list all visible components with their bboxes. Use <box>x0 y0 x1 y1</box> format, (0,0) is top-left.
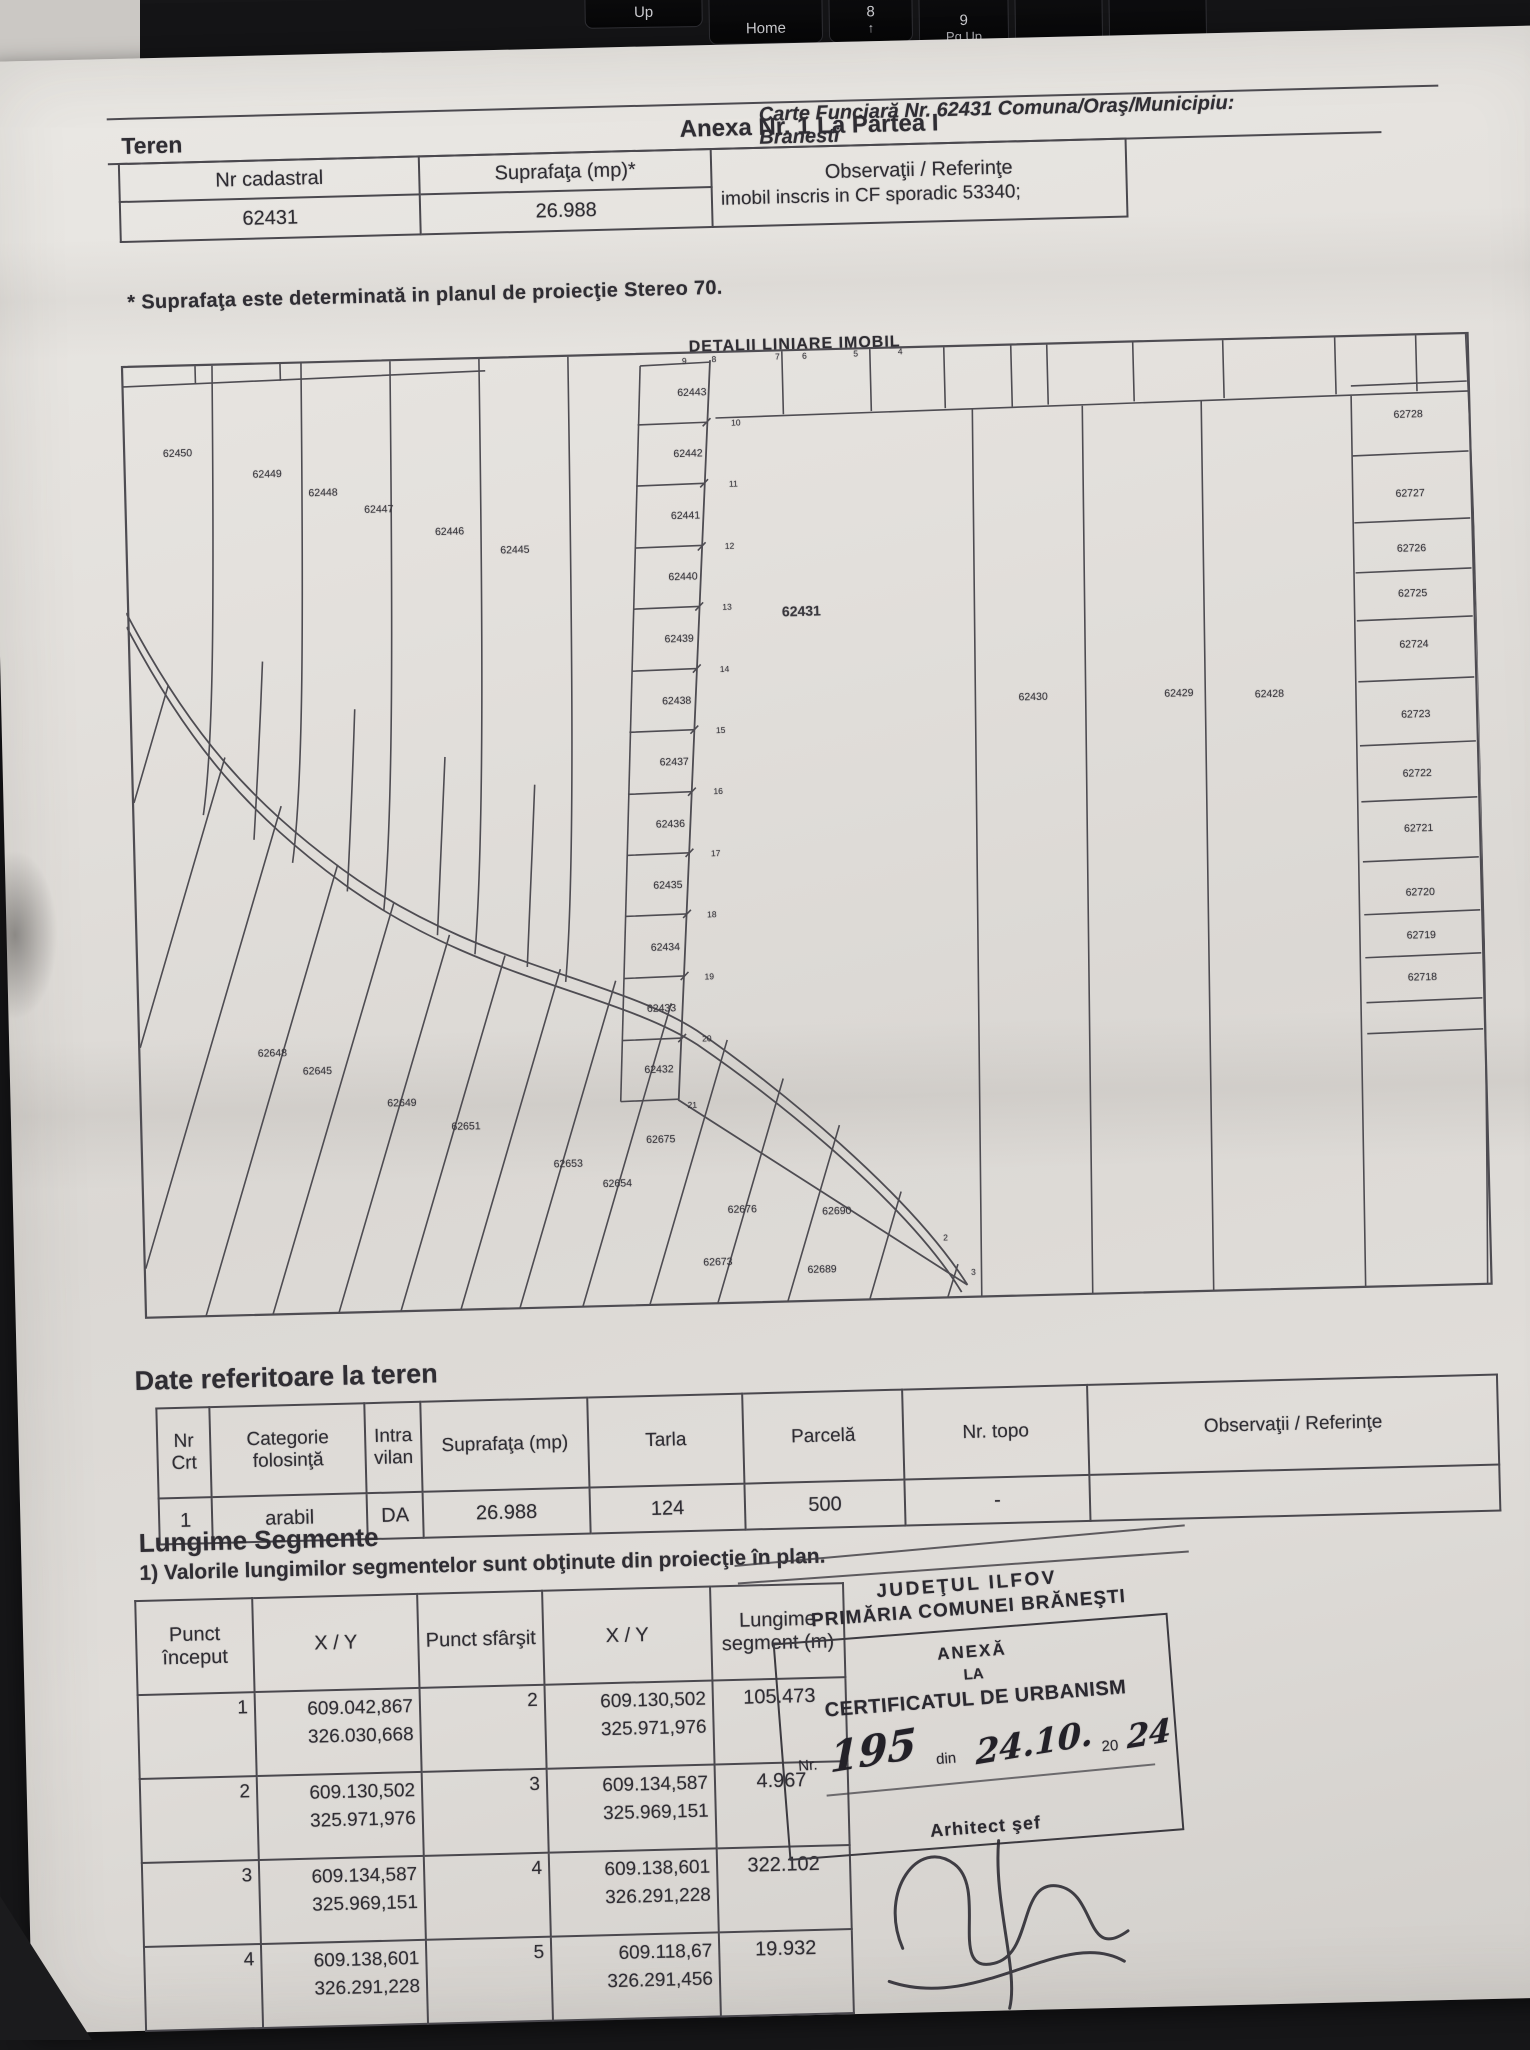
parcel-label-62654: 62654 <box>603 1177 632 1190</box>
parcel-label-62726: 62726 <box>1397 542 1426 555</box>
suprafata-footnote: * Suprafaţa este determinată in planul d… <box>127 277 723 315</box>
parcel-label-62727: 62727 <box>1395 487 1424 500</box>
seg-xy1: 609.138,601326.291,228 <box>261 1940 428 2028</box>
stamp-date-handwritten: 24.10. <box>976 1713 1093 1773</box>
parcel-label-62723: 62723 <box>1401 708 1430 721</box>
vertex-label-10: 10 <box>731 417 741 427</box>
vertex-label-19: 19 <box>704 971 714 981</box>
seg-col-header-0: Punct început <box>135 1598 254 1695</box>
parcel-label-62433: 62433 <box>647 1002 676 1015</box>
seg-xy1: 609.130,502325.971,976 <box>257 1772 424 1860</box>
vertex-label-12: 12 <box>725 540 735 550</box>
seg-xy1: 609.134,587325.969,151 <box>259 1856 426 1944</box>
parcel-label-62718: 62718 <box>1408 971 1437 984</box>
date-col-header-7: Observaţii / Referinţe <box>1087 1375 1499 1475</box>
date-col-header-4: Tarla <box>587 1394 744 1488</box>
parcel-label-62645: 62645 <box>303 1065 332 1078</box>
seg-col-header-1: X / Y <box>252 1594 419 1692</box>
seg-p1: 4 <box>144 1944 263 2031</box>
parcel-label-62725: 62725 <box>1398 587 1427 600</box>
seg-col-header-3: X / Y <box>542 1587 712 1685</box>
date-row-cell-4: 124 <box>589 1484 745 1534</box>
stamp-year-prefix: 20 <box>1101 1737 1119 1755</box>
parcel-label-62428: 62428 <box>1255 688 1284 701</box>
stamp-top-line <box>734 1524 1184 1566</box>
parcel-label-62438: 62438 <box>662 694 691 707</box>
parcel-label-62448: 62448 <box>308 486 337 499</box>
parcel-label-62436: 62436 <box>656 818 685 831</box>
parcel-label-62440: 62440 <box>668 571 697 584</box>
parcel-label-62449: 62449 <box>252 468 281 481</box>
seg-xy1: 609.042,867326.030,668 <box>255 1688 422 1776</box>
vertex-label-17: 17 <box>711 848 721 858</box>
parcel-label-62720: 62720 <box>1405 886 1434 899</box>
parcel-label-62724: 62724 <box>1399 638 1428 651</box>
vertex-label-21: 21 <box>687 1100 697 1110</box>
vertex-label-2: 2 <box>943 1232 948 1242</box>
seg-p2: 5 <box>426 1937 553 2024</box>
signature <box>856 1813 1140 2023</box>
date-row-cell-3: 26.988 <box>423 1488 591 1538</box>
vertex-label-13: 13 <box>722 602 732 612</box>
parcel-label-62434: 62434 <box>651 941 680 954</box>
parcel-label-62445: 62445 <box>500 544 529 557</box>
seg-p2: 2 <box>420 1685 547 1772</box>
date-col-header-6: Nr. topo <box>902 1385 1089 1480</box>
stamp-number-row: Nr. 195 din 24.10. 20 24 <box>782 1707 1178 1807</box>
vertex-label-6: 6 <box>802 350 807 360</box>
parcel-label-62437: 62437 <box>659 755 688 768</box>
parcel-label-62651: 62651 <box>451 1120 480 1133</box>
stamp-year-handwritten: 24 <box>1127 1711 1171 1757</box>
vertex-label-4: 4 <box>898 346 903 356</box>
vertex-label-16: 16 <box>713 786 723 796</box>
seg-p2: 3 <box>422 1769 549 1856</box>
parcel-label-62719: 62719 <box>1407 929 1436 942</box>
parcel-label-62648: 62648 <box>258 1047 287 1060</box>
urbanism-stamp: JUDEŢUL ILFOV PRIMĂRIA COMUNEI BRĂNEŞTI … <box>723 1506 1239 2022</box>
date-col-header-3: Suprafaţa (mp) <box>420 1398 589 1492</box>
parcel-label-62432: 62432 <box>644 1063 673 1076</box>
stamp-nr-label: Nr. <box>798 1756 818 1774</box>
parcel-label-62430: 62430 <box>1018 691 1047 704</box>
parcel-label-62722: 62722 <box>1402 767 1431 780</box>
date-teren-table: Nr CrtCategorie folosinţăIntra vilanSupr… <box>155 1374 1501 1546</box>
parcel-label-62447: 62447 <box>364 503 393 516</box>
date-col-header-0: Nr Crt <box>156 1407 211 1498</box>
seg-p1: 1 <box>138 1692 257 1779</box>
parcel-label-62673: 62673 <box>703 1256 732 1269</box>
parcel-label-62728: 62728 <box>1393 408 1422 421</box>
parcel-label-62721: 62721 <box>1404 822 1433 835</box>
parcel-label-62429: 62429 <box>1164 687 1193 700</box>
stamp-din-label: din <box>935 1750 956 1769</box>
observatii-cell: Observaţii / Referinţe imobil inscris in… <box>711 139 1128 227</box>
parcel-label-62443: 62443 <box>677 386 706 399</box>
parcel-label-62690: 62690 <box>822 1205 851 1218</box>
nr-cadastral-value: 62431 <box>120 194 421 242</box>
seg-xy2: 609.118,67326.291,456 <box>551 1932 721 2020</box>
parcel-label-62675: 62675 <box>646 1133 675 1146</box>
vertex-label-20: 20 <box>702 1033 712 1043</box>
seg-xy2: 609.138,601326.291,228 <box>549 1848 719 1936</box>
seg-xy2: 609.130,502325.971,976 <box>544 1680 714 1768</box>
date-row-cell-5: 500 <box>744 1480 905 1530</box>
cadastral-document: Carte Funciară Nr. 62431 Comuna/Oraş/Mun… <box>0 0 1530 2042</box>
suprafata-value: 26.988 <box>420 187 713 234</box>
vertex-label-8: 8 <box>711 354 716 364</box>
vertex-label-11: 11 <box>729 478 738 488</box>
seg-row-3: 4609.138,601326.291,2285609.118,67326.29… <box>144 1929 854 2031</box>
parcel-label-62441: 62441 <box>671 510 700 523</box>
vertex-label-14: 14 <box>720 664 730 674</box>
parcel-label-62442: 62442 <box>673 447 702 460</box>
date-col-header-5: Parcelă <box>742 1390 904 1484</box>
parcel-label-62450: 62450 <box>163 447 192 460</box>
seg-p1: 3 <box>142 1860 261 1947</box>
date-teren-heading: Date referitoare la teren <box>134 1358 438 1397</box>
vertex-label-15: 15 <box>716 725 726 735</box>
parcel-label-62435: 62435 <box>653 879 682 892</box>
parcel-label-62653: 62653 <box>553 1157 582 1170</box>
stamp-nr-handwritten: 195 <box>830 1718 917 1782</box>
date-col-header-1: Categorie folosinţă <box>209 1403 366 1497</box>
seg-xy2: 609.134,587325.969,151 <box>547 1764 717 1852</box>
plan-drawing <box>120 331 1494 1320</box>
vertex-label-5: 5 <box>853 348 858 358</box>
vertex-label-9: 9 <box>682 355 687 365</box>
seg-p2: 4 <box>424 1853 551 1940</box>
seg-col-header-2: Punct sfârşit <box>417 1591 544 1688</box>
vertex-label-3: 3 <box>971 1267 976 1277</box>
parcel-label-62446: 62446 <box>435 525 464 538</box>
parcel-label-62431: 62431 <box>782 602 821 619</box>
date-col-header-2: Intra vilan <box>364 1402 422 1493</box>
seg-p1: 2 <box>140 1776 259 1863</box>
teren-section-label: Teren <box>121 131 183 160</box>
parcel-label-62649: 62649 <box>387 1097 416 1110</box>
parcel-label-62689: 62689 <box>807 1263 836 1276</box>
vertex-label-7: 7 <box>775 351 780 361</box>
segmente-heading: Lungime Segmente <box>138 1522 379 1559</box>
parcel-label-62676: 62676 <box>727 1203 756 1216</box>
parcel-label-62439: 62439 <box>664 633 693 646</box>
teren-table: Nr cadastral Suprafaţa (mp)* Observaţii … <box>118 138 1129 244</box>
vertex-label-18: 18 <box>707 910 717 920</box>
cadastral-plan: DETALII LINIARE IMOBIL <box>120 331 1494 1320</box>
